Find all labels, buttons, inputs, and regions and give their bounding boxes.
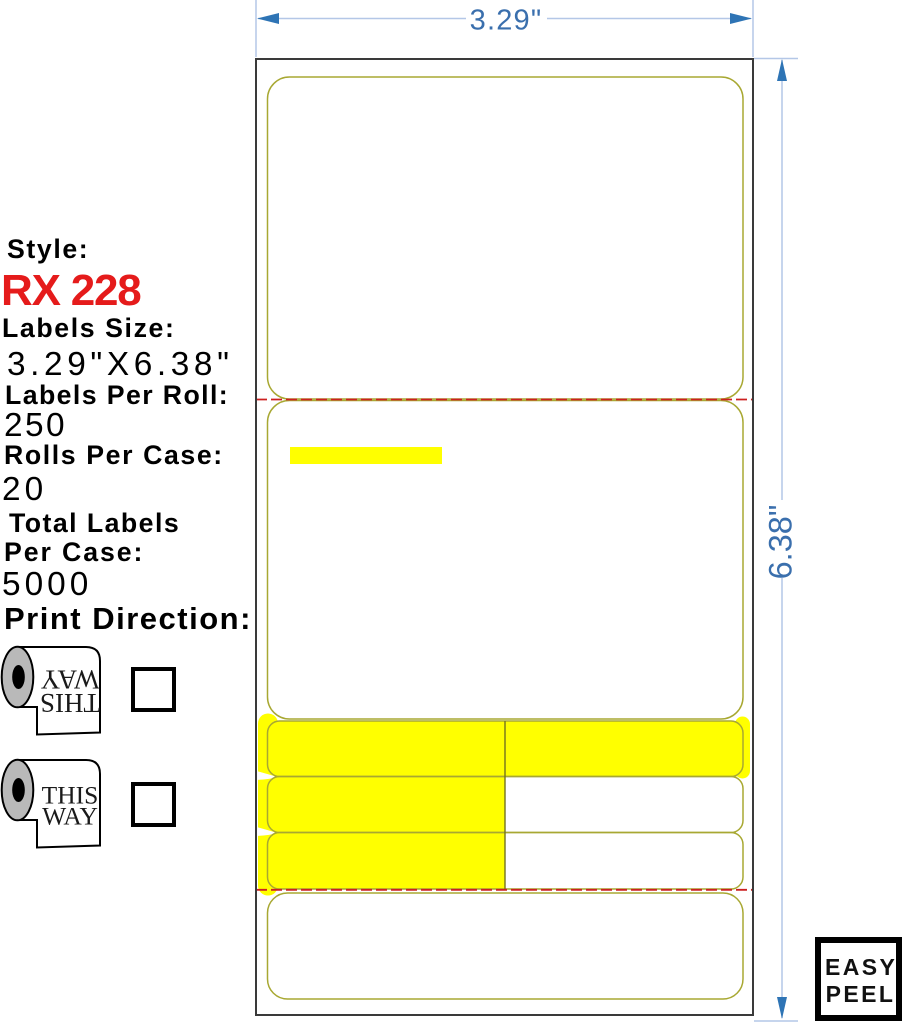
- svg-text:6.38": 6.38": [763, 505, 799, 580]
- svg-text:3.29": 3.29": [470, 4, 543, 36]
- svg-text:WAY: WAY: [42, 801, 98, 830]
- svg-text:WAY: WAY: [40, 664, 99, 694]
